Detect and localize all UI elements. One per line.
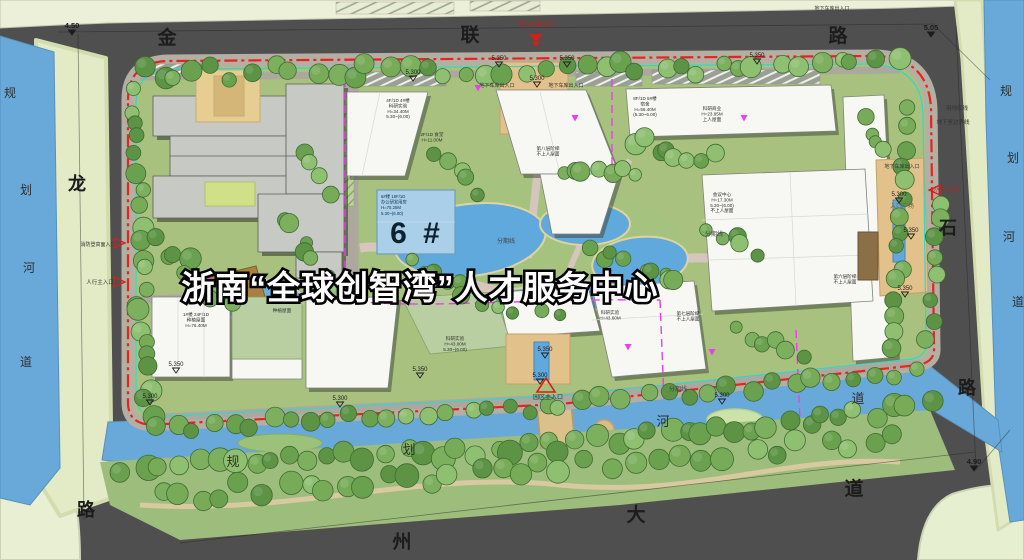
tree <box>801 368 820 387</box>
road-name-label: 河 <box>656 414 669 429</box>
tree-highlight <box>840 442 848 450</box>
tree <box>898 142 916 160</box>
tree <box>139 282 154 297</box>
tree <box>927 250 942 265</box>
tree-highlight <box>305 478 313 486</box>
tree <box>538 61 554 77</box>
building-note: H=43.60M <box>599 315 620 320</box>
tree <box>882 339 901 358</box>
green-roof <box>232 297 302 359</box>
tree <box>437 405 453 421</box>
tree-highlight <box>475 461 484 470</box>
tree-highlight <box>383 59 392 68</box>
road-name-label: 大 <box>626 503 645 526</box>
tree <box>890 208 908 226</box>
tree <box>127 298 149 320</box>
tree-highlight <box>666 151 674 159</box>
tree-highlight <box>745 425 753 433</box>
tree <box>744 382 764 402</box>
elevation-value: 5.300 <box>405 70 421 76</box>
annotation-label: 人行主入口 <box>86 278 114 286</box>
building-note: 不上人屋面 <box>677 315 700 322</box>
tree <box>895 170 914 189</box>
tree <box>523 406 537 420</box>
elevation-value: 4.90 <box>967 457 982 466</box>
tree <box>674 58 689 73</box>
tree <box>784 430 805 451</box>
tree <box>812 406 829 423</box>
tree-highlight <box>356 56 365 65</box>
tree-highlight <box>671 447 681 457</box>
tree-highlight <box>402 58 412 68</box>
tree <box>910 362 924 376</box>
tree <box>823 373 840 390</box>
road-name-label: 石 <box>938 218 957 238</box>
building-6-note: 5.30~(6.00) <box>381 211 404 216</box>
elevation-value: 5.300 <box>529 76 545 82</box>
tree-highlight <box>696 155 703 162</box>
tree <box>126 145 141 160</box>
tree <box>550 400 565 415</box>
tree <box>711 448 734 471</box>
tree-highlight <box>693 453 702 462</box>
site-plan-stage: 6 # 金联路龙路石路州大道规划河道规划河道规划河道办公主要入口地下车库出入口地… <box>0 0 1024 560</box>
tree <box>649 449 669 469</box>
tree <box>381 57 401 77</box>
annotation-label: 消防登高面入口 <box>80 241 115 248</box>
tree <box>603 246 616 259</box>
tree-highlight <box>148 419 157 428</box>
annotation-label: 用地红线 <box>946 104 969 112</box>
tree-highlight <box>407 255 413 261</box>
tree-highlight <box>591 388 600 397</box>
tree-highlight <box>542 434 550 442</box>
tree-highlight <box>253 487 263 497</box>
tree-highlight <box>167 72 174 79</box>
tree-highlight <box>612 54 622 64</box>
tree <box>262 453 278 469</box>
road-name-label: 划 <box>1007 151 1019 165</box>
road-name-label: 州 <box>392 531 411 553</box>
tree-highlight <box>888 372 895 379</box>
tree <box>139 357 157 375</box>
hq-court <box>205 182 255 206</box>
tree-highlight <box>884 341 892 349</box>
tree <box>748 440 768 460</box>
tree-highlight <box>805 418 813 426</box>
building-note: 不上人屋面 <box>537 150 560 157</box>
tree <box>894 395 915 416</box>
tree <box>137 259 152 274</box>
tree-highlight <box>617 253 624 260</box>
tree <box>420 407 438 425</box>
tree-highlight <box>718 378 727 387</box>
elevation-value: 5.300 <box>142 394 158 400</box>
tree-highlight <box>573 164 582 173</box>
annotation-label: 园区主入口 <box>533 393 563 401</box>
tree <box>547 460 570 483</box>
tree <box>751 249 764 262</box>
tree <box>724 422 745 443</box>
tree-highlight <box>321 414 328 421</box>
tree-highlight <box>138 184 144 190</box>
tree <box>611 390 631 410</box>
tree-highlight <box>814 408 822 416</box>
tree <box>398 408 414 424</box>
tree <box>377 445 395 463</box>
tree <box>554 309 566 321</box>
tree <box>136 183 150 197</box>
tree <box>707 144 725 162</box>
tree-highlight <box>496 460 505 469</box>
tree <box>764 373 781 390</box>
tree <box>170 456 189 475</box>
tree-highlight <box>894 227 901 234</box>
tree-highlight <box>680 154 687 161</box>
annotation-label: 地下车库出入口 <box>814 5 849 12</box>
tree <box>573 390 592 409</box>
building-6-label: 6 # <box>390 217 444 250</box>
tree <box>923 293 938 308</box>
tree <box>206 414 223 431</box>
road-name-label: 道 <box>851 391 864 406</box>
tree-highlight <box>347 69 356 78</box>
tree <box>616 251 631 266</box>
tree <box>889 48 911 70</box>
tree <box>899 117 916 134</box>
tree <box>280 471 303 494</box>
tree-highlight <box>869 52 877 60</box>
tree <box>867 50 885 68</box>
tree <box>882 425 901 444</box>
tree <box>322 186 339 203</box>
tree <box>582 240 598 256</box>
tree-highlight <box>630 170 636 176</box>
road-name-label: 规 <box>226 454 239 469</box>
tree <box>340 405 356 421</box>
tree <box>202 57 218 73</box>
tree-highlight <box>422 61 429 68</box>
tree <box>228 472 248 492</box>
tree <box>378 410 395 427</box>
annotation-label: 办公主要入口 <box>518 20 554 28</box>
tree-highlight <box>311 66 320 75</box>
elevation-value: 5.350 <box>903 228 919 234</box>
tree-highlight <box>832 411 839 418</box>
tree-highlight <box>472 190 478 196</box>
building-note: 5.30~(6.00) <box>710 203 734 208</box>
tree <box>635 128 654 147</box>
tree-highlight <box>803 370 812 379</box>
tree <box>812 52 832 72</box>
tree-highlight <box>133 233 142 242</box>
tree <box>679 153 695 169</box>
building-note: 5.30~(6.00) <box>443 347 467 352</box>
building-note: H=76.40M <box>185 323 206 328</box>
tree <box>867 368 883 384</box>
road-name-label: 划 <box>402 442 415 457</box>
tree <box>629 169 642 182</box>
tree <box>435 69 450 84</box>
tree <box>184 424 199 439</box>
tree-highlight <box>522 435 530 443</box>
tree <box>148 458 166 476</box>
tree <box>303 251 318 266</box>
tree-highlight <box>640 424 648 432</box>
tree-highlight <box>701 225 707 231</box>
tree <box>222 73 236 87</box>
tree <box>510 464 531 485</box>
tree <box>922 391 943 412</box>
tree <box>240 419 257 436</box>
tree <box>586 424 608 446</box>
tree <box>350 448 373 471</box>
tree-highlight <box>425 477 433 485</box>
tree <box>768 446 786 464</box>
tree-highlight <box>530 455 538 463</box>
elevation-value: 5.350 <box>749 53 765 59</box>
tree <box>459 68 473 82</box>
tree-highlight <box>303 156 310 163</box>
tree-highlight <box>250 456 259 465</box>
annotation-label: 地下车库出入口 <box>884 163 919 170</box>
tree <box>638 422 655 439</box>
elevation-value: 5.350 <box>168 362 184 368</box>
tree-highlight <box>112 465 121 474</box>
tree <box>571 162 590 181</box>
building-note: 不上人屋面 <box>711 207 734 214</box>
tree <box>839 440 857 458</box>
building-note: 5.30~(6.00) <box>386 114 410 119</box>
tree <box>458 169 474 185</box>
tree-highlight <box>892 210 900 218</box>
tree <box>471 188 485 202</box>
building-retail <box>626 85 836 137</box>
tree <box>181 60 202 81</box>
annotation-label: 地下车库出入口 <box>548 82 583 89</box>
tree <box>440 153 457 170</box>
tree <box>789 57 809 77</box>
tree-highlight <box>137 59 146 68</box>
tree <box>301 412 320 431</box>
tree <box>690 450 711 471</box>
tree <box>319 448 335 464</box>
tree-highlight <box>575 392 584 401</box>
tree <box>283 412 298 427</box>
tree <box>626 63 643 80</box>
tree <box>547 441 569 463</box>
tree <box>889 239 904 254</box>
tree <box>797 350 811 364</box>
tree <box>126 164 146 184</box>
tree-highlight <box>593 163 600 170</box>
tree <box>311 168 327 184</box>
tree-highlight <box>732 62 739 69</box>
tree-highlight <box>825 375 833 383</box>
tree-highlight <box>481 403 488 410</box>
tree-highlight <box>139 261 146 268</box>
master-plan-drawing: 6 # 金联路龙路石路州大道规划河道规划河道规划河道办公主要入口地下车库出入口地… <box>0 0 1024 560</box>
building-note: H=17.30M <box>711 197 732 202</box>
tree <box>309 64 329 84</box>
tree-highlight <box>891 240 898 247</box>
tree <box>781 411 800 430</box>
tree-highlight <box>379 412 387 420</box>
tree <box>427 147 441 161</box>
tree-highlight <box>888 271 896 279</box>
road-name-label: 道 <box>844 477 863 500</box>
annotation-label: 地下车库出入口 <box>479 82 514 89</box>
elevation-value: 5.350 <box>537 347 553 353</box>
tree <box>565 430 584 449</box>
road-name-label: 规 <box>1000 83 1012 98</box>
tree-highlight <box>133 324 142 333</box>
title-banner: 浙南“全球创智湾”人才服务中心 <box>182 269 659 306</box>
tree <box>147 229 164 246</box>
tree-highlight <box>508 308 514 314</box>
tree-highlight <box>224 74 230 80</box>
building-note: H=11.00M <box>422 137 443 142</box>
tree <box>664 270 683 289</box>
tree <box>167 483 189 505</box>
tree <box>917 331 935 349</box>
tree <box>298 451 317 470</box>
tree <box>479 401 493 415</box>
tree-highlight <box>606 166 614 174</box>
tree-highlight <box>927 230 935 238</box>
tree <box>687 66 704 83</box>
annotation-label: 入口广场 <box>890 202 914 210</box>
tree <box>706 417 725 436</box>
elevation-value: 5.05 <box>924 23 939 32</box>
tree-highlight <box>847 374 854 381</box>
elevation-value: 5.350 <box>559 56 575 62</box>
tree <box>320 412 335 427</box>
tree <box>420 59 437 76</box>
tree <box>823 431 842 450</box>
tree-highlight <box>379 447 387 455</box>
tree-highlight <box>468 404 475 411</box>
tree <box>265 407 285 427</box>
tree-highlight <box>869 369 876 376</box>
road-name-label: 规 <box>4 85 16 100</box>
tree <box>126 81 140 95</box>
road-name-label: 路 <box>828 24 848 47</box>
tree-highlight <box>887 309 896 318</box>
tree <box>740 57 761 78</box>
tree-highlight <box>182 250 192 260</box>
building-1 <box>152 297 230 377</box>
tree <box>846 372 861 387</box>
kiosk <box>858 232 878 280</box>
tree-highlight <box>400 410 407 417</box>
tree <box>899 100 914 115</box>
tree <box>841 54 856 69</box>
road-name-label: 道 <box>1012 295 1024 309</box>
tree-highlight <box>149 230 157 238</box>
tree <box>520 433 538 451</box>
tree <box>730 321 742 333</box>
tree <box>279 62 296 79</box>
tree-highlight <box>825 433 833 441</box>
tree-highlight <box>756 338 763 345</box>
tree <box>885 323 903 341</box>
tree <box>875 141 891 157</box>
tree <box>669 445 690 466</box>
tree <box>244 64 262 82</box>
tree <box>436 464 457 485</box>
annotation-label: 地下室边界线 <box>936 118 970 126</box>
tree-highlight <box>128 83 134 89</box>
elevation-value: 5.350 <box>412 367 428 373</box>
tree <box>626 452 647 473</box>
tree-highlight <box>791 59 800 68</box>
building-note: (5.30~6.00) <box>633 112 657 117</box>
tree-highlight <box>911 364 917 370</box>
road-name-label: 河 <box>1003 230 1015 244</box>
tree <box>602 459 622 479</box>
tree <box>362 410 379 427</box>
tree <box>528 453 547 472</box>
tree <box>301 154 317 170</box>
tree <box>575 450 593 468</box>
tree <box>589 386 609 406</box>
building-note: 上人屋面 <box>703 116 722 123</box>
tree <box>694 154 709 169</box>
road-name-label: 金 <box>156 26 177 49</box>
tree-highlight <box>208 416 216 424</box>
elevation-value: 5.350 <box>897 286 913 292</box>
annotation-label: 分期线 <box>497 237 515 245</box>
tree-highlight <box>626 431 635 440</box>
tree-highlight <box>628 455 638 465</box>
elevation-value: 5.300 <box>891 192 907 198</box>
tree-highlight <box>478 68 487 77</box>
building-note: H=34.40M <box>387 109 408 114</box>
tree <box>354 54 374 74</box>
tree <box>642 384 658 400</box>
tree <box>506 307 518 319</box>
road-name-label: 河 <box>23 261 35 275</box>
tree <box>503 399 517 413</box>
tree <box>615 161 631 177</box>
tree-highlight <box>556 310 561 315</box>
road-name-label: 划 <box>20 183 32 197</box>
tree <box>110 463 130 483</box>
elevation-value: 5.300 <box>714 393 730 399</box>
road-name-label: 路 <box>77 499 96 520</box>
tree-highlight <box>264 454 271 461</box>
tree <box>146 417 165 436</box>
tree <box>395 464 419 488</box>
road-name-label: 道 <box>20 355 32 369</box>
tree-highlight <box>342 407 349 414</box>
tree-highlight <box>770 448 778 456</box>
tree <box>755 417 777 439</box>
building-note: H=56.40M <box>634 107 655 112</box>
building-note: H=43.00M <box>444 341 465 346</box>
tree <box>887 370 902 385</box>
tree <box>352 476 374 498</box>
elevation-value: 5.350 <box>491 56 507 62</box>
tree <box>717 56 732 71</box>
tree-highlight <box>660 61 668 69</box>
tree <box>491 64 512 85</box>
tree <box>445 438 465 458</box>
tree <box>165 70 180 85</box>
tree <box>313 480 334 501</box>
tree-highlight <box>901 119 909 127</box>
